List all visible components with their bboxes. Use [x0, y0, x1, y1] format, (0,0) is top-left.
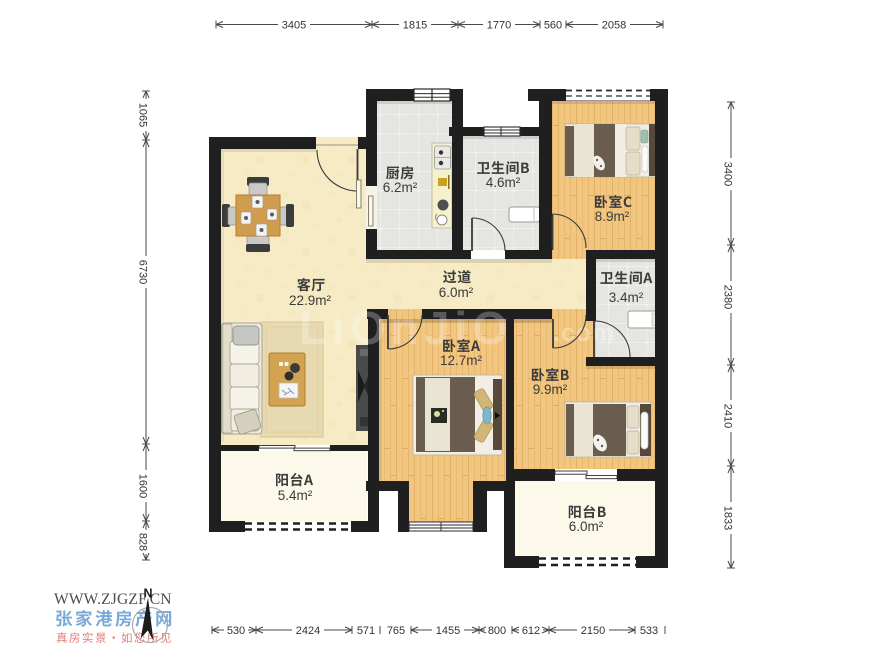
svg-text:9.9m²: 9.9m² [533, 382, 568, 397]
svg-text:5.4m²: 5.4m² [278, 488, 313, 503]
svg-text:765: 765 [387, 625, 405, 637]
svg-text:800: 800 [488, 625, 506, 637]
svg-text:571: 571 [357, 625, 375, 637]
svg-text:530: 530 [227, 625, 245, 637]
svg-text:2380: 2380 [721, 285, 733, 309]
svg-text:6.0m²: 6.0m² [569, 519, 604, 534]
svg-text:533: 533 [640, 625, 658, 637]
svg-text:6.2m²: 6.2m² [383, 180, 418, 195]
svg-text:12.7m²: 12.7m² [440, 353, 483, 368]
svg-text:2410: 2410 [721, 404, 733, 428]
svg-text:3405: 3405 [282, 20, 306, 32]
svg-text:1815: 1815 [403, 20, 427, 32]
svg-text:3.4m²: 3.4m² [609, 290, 644, 305]
svg-text:LiOnJiO: LiOnJiO [299, 302, 513, 354]
svg-text:4.6m²: 4.6m² [486, 175, 521, 190]
svg-text:828: 828 [136, 533, 148, 551]
svg-text:1833: 1833 [721, 506, 733, 530]
svg-text:22.9m²: 22.9m² [289, 293, 332, 308]
svg-text:1770: 1770 [487, 20, 511, 32]
svg-text:2058: 2058 [602, 20, 626, 32]
svg-text:3400: 3400 [721, 162, 733, 186]
svg-text:2424: 2424 [296, 625, 320, 637]
svg-text:8.9m²: 8.9m² [595, 209, 630, 224]
svg-text:612: 612 [522, 625, 540, 637]
svg-text:6730: 6730 [136, 260, 148, 284]
svg-text:1455: 1455 [436, 625, 460, 637]
svg-text:1600: 1600 [136, 474, 148, 498]
svg-text:6.0m²: 6.0m² [439, 285, 474, 300]
svg-text:560: 560 [544, 20, 562, 32]
svg-text:1065: 1065 [136, 103, 148, 127]
svg-text:WWW.ZJGZF.CN: WWW.ZJGZF.CN [54, 591, 172, 608]
svg-text:2150: 2150 [581, 625, 605, 637]
